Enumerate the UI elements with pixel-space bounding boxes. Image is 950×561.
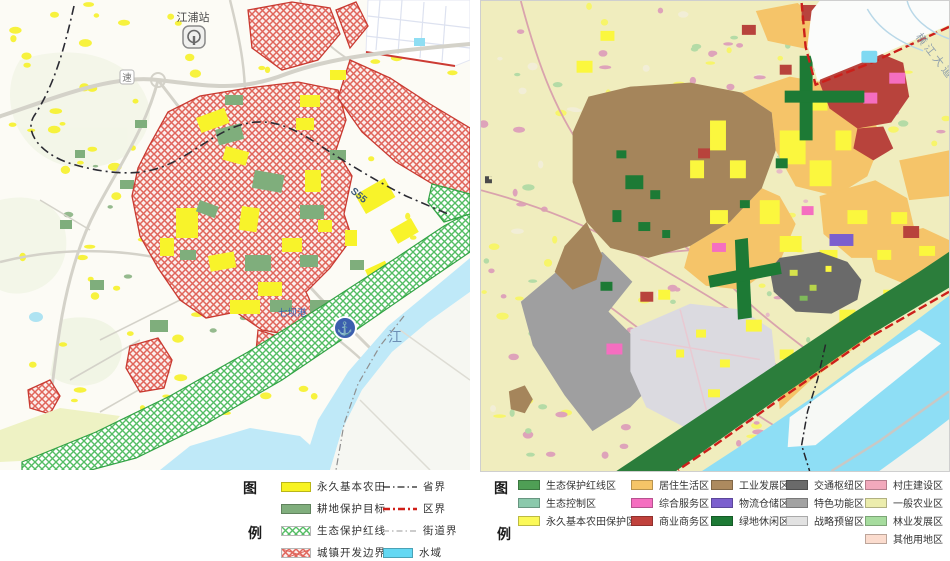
port-label: 七坝港 <box>278 307 307 319</box>
legend-label: 生态保护红线 <box>317 523 386 538</box>
legend-swatch-green-hatch <box>281 526 311 536</box>
legend-swatch-red-hatch <box>281 548 311 558</box>
legend-label: 永久基本农田保护区 <box>546 513 636 528</box>
legend-item: 耕地保护目标 <box>281 503 386 514</box>
legend-swatch <box>786 516 808 526</box>
legend-swatch <box>631 480 653 490</box>
legend-label: 永久基本农田 <box>317 479 386 494</box>
legend-swatch <box>631 498 653 508</box>
legend-swatch <box>865 480 887 490</box>
left-map: 江浦站 速 S55 七坝港 ⚓ 江 <box>0 0 470 470</box>
legend-item: 特色功能区 <box>786 497 864 508</box>
legend-item: 街道界 <box>383 525 458 536</box>
legend-label: 省界 <box>423 479 446 494</box>
legend-item: 生态控制区 <box>518 497 596 508</box>
legend-swatch <box>865 534 887 544</box>
legend-item: 居住生活区 <box>631 479 709 490</box>
province-boundary-sample <box>383 483 417 491</box>
legend-item: 永久基本农田保护区 <box>518 515 636 526</box>
legend-swatch <box>865 516 887 526</box>
right-map: 横江大道 <box>480 0 950 472</box>
legend-label: 生态控制区 <box>546 495 596 510</box>
river-label: 江 <box>388 329 404 345</box>
legend-label: 耕地保护目标 <box>317 501 386 516</box>
right-legend: 图 例 生态保护红线区 生态控制区 永久基本农田保护区 居住生活区 综合服务区 … <box>480 472 950 561</box>
legend-item: 一般农业区 <box>865 497 943 508</box>
legend-label: 综合服务区 <box>659 495 709 510</box>
legend-swatch <box>711 498 733 508</box>
map-mark <box>485 176 492 183</box>
legend-label: 其他用地区 <box>893 531 943 546</box>
legend-label: 工业发展区 <box>739 477 789 492</box>
left-map-panel: 江浦站 速 S55 七坝港 ⚓ 江 图 例 <box>0 0 470 561</box>
legend-item: 林业发展区 <box>865 515 943 526</box>
legend-title-bottom: 例 <box>497 524 511 544</box>
legend-title-top: 图 <box>243 478 257 498</box>
legend-label: 特色功能区 <box>814 495 864 510</box>
legend-item: 城镇开发边界 <box>281 547 386 558</box>
legend-item: 村庄建设区 <box>865 479 943 490</box>
legend-label: 区界 <box>423 501 446 516</box>
legend-item: 省界 <box>383 481 446 492</box>
legend-item: 商业商务区 <box>631 515 709 526</box>
legend-title-top: 图 <box>494 478 508 498</box>
svg-text:⚓: ⚓ <box>337 321 353 336</box>
legend-swatch <box>631 516 653 526</box>
legend-label: 商业商务区 <box>659 513 709 528</box>
legend-label: 绿地休闲区 <box>739 513 789 528</box>
legend-item: 生态保护红线 <box>281 525 386 536</box>
legend-swatch <box>383 548 413 558</box>
legend-item: 物流仓储区 <box>711 497 789 508</box>
right-map-panel: 横江大道 图 例 生态保护红线区 生态控制区 永久基本农田保护区 居住生活区 综… <box>480 0 950 561</box>
legend-label: 一般农业区 <box>893 495 943 510</box>
district-boundary-sample <box>383 505 417 513</box>
legend-item: 水域 <box>383 547 442 558</box>
legend-label: 街道界 <box>423 523 458 538</box>
legend-item: 其他用地区 <box>865 533 943 544</box>
legend-title-bottom: 例 <box>248 523 262 543</box>
legend-label: 村庄建设区 <box>893 477 943 492</box>
street-boundary-sample <box>383 527 417 535</box>
legend-swatch <box>281 504 311 514</box>
legend-swatch <box>865 498 887 508</box>
legend-swatch <box>711 480 733 490</box>
legend-swatch <box>518 498 540 508</box>
legend-item: 工业发展区 <box>711 479 789 490</box>
legend-label: 城镇开发边界 <box>317 545 386 560</box>
expressway-shield-label: 速 <box>122 73 132 84</box>
legend-label: 水域 <box>419 545 442 560</box>
legend-swatch <box>786 480 808 490</box>
legend-item: 生态保护红线区 <box>518 479 616 490</box>
legend-item: 绿地休闲区 <box>711 515 789 526</box>
station-label: 江浦站 <box>177 10 210 24</box>
screenshot-stage: 江浦站 速 S55 七坝港 ⚓ 江 图 例 <box>0 0 950 561</box>
legend-item: 综合服务区 <box>631 497 709 508</box>
expressway-shield: 速 <box>120 70 134 84</box>
legend-swatch <box>711 516 733 526</box>
legend-label: 生态保护红线区 <box>546 477 616 492</box>
left-legend: 图 例 永久基本农田 耕地保护目标 生态保护红线 城镇开发边界 <box>0 470 470 561</box>
legend-swatch <box>518 480 540 490</box>
legend-swatch <box>281 482 311 492</box>
legend-label: 林业发展区 <box>893 513 943 528</box>
legend-label: 交通枢纽区 <box>814 477 864 492</box>
legend-item: 交通枢纽区 <box>786 479 864 490</box>
legend-label: 居住生活区 <box>659 477 709 492</box>
legend-label: 物流仓储区 <box>739 495 789 510</box>
legend-item: 永久基本农田 <box>281 481 386 492</box>
legend-item: 区界 <box>383 503 446 514</box>
legend-swatch <box>786 498 808 508</box>
legend-label: 战略预留区 <box>814 513 864 528</box>
legend-swatch <box>518 516 540 526</box>
legend-item: 战略预留区 <box>786 515 864 526</box>
